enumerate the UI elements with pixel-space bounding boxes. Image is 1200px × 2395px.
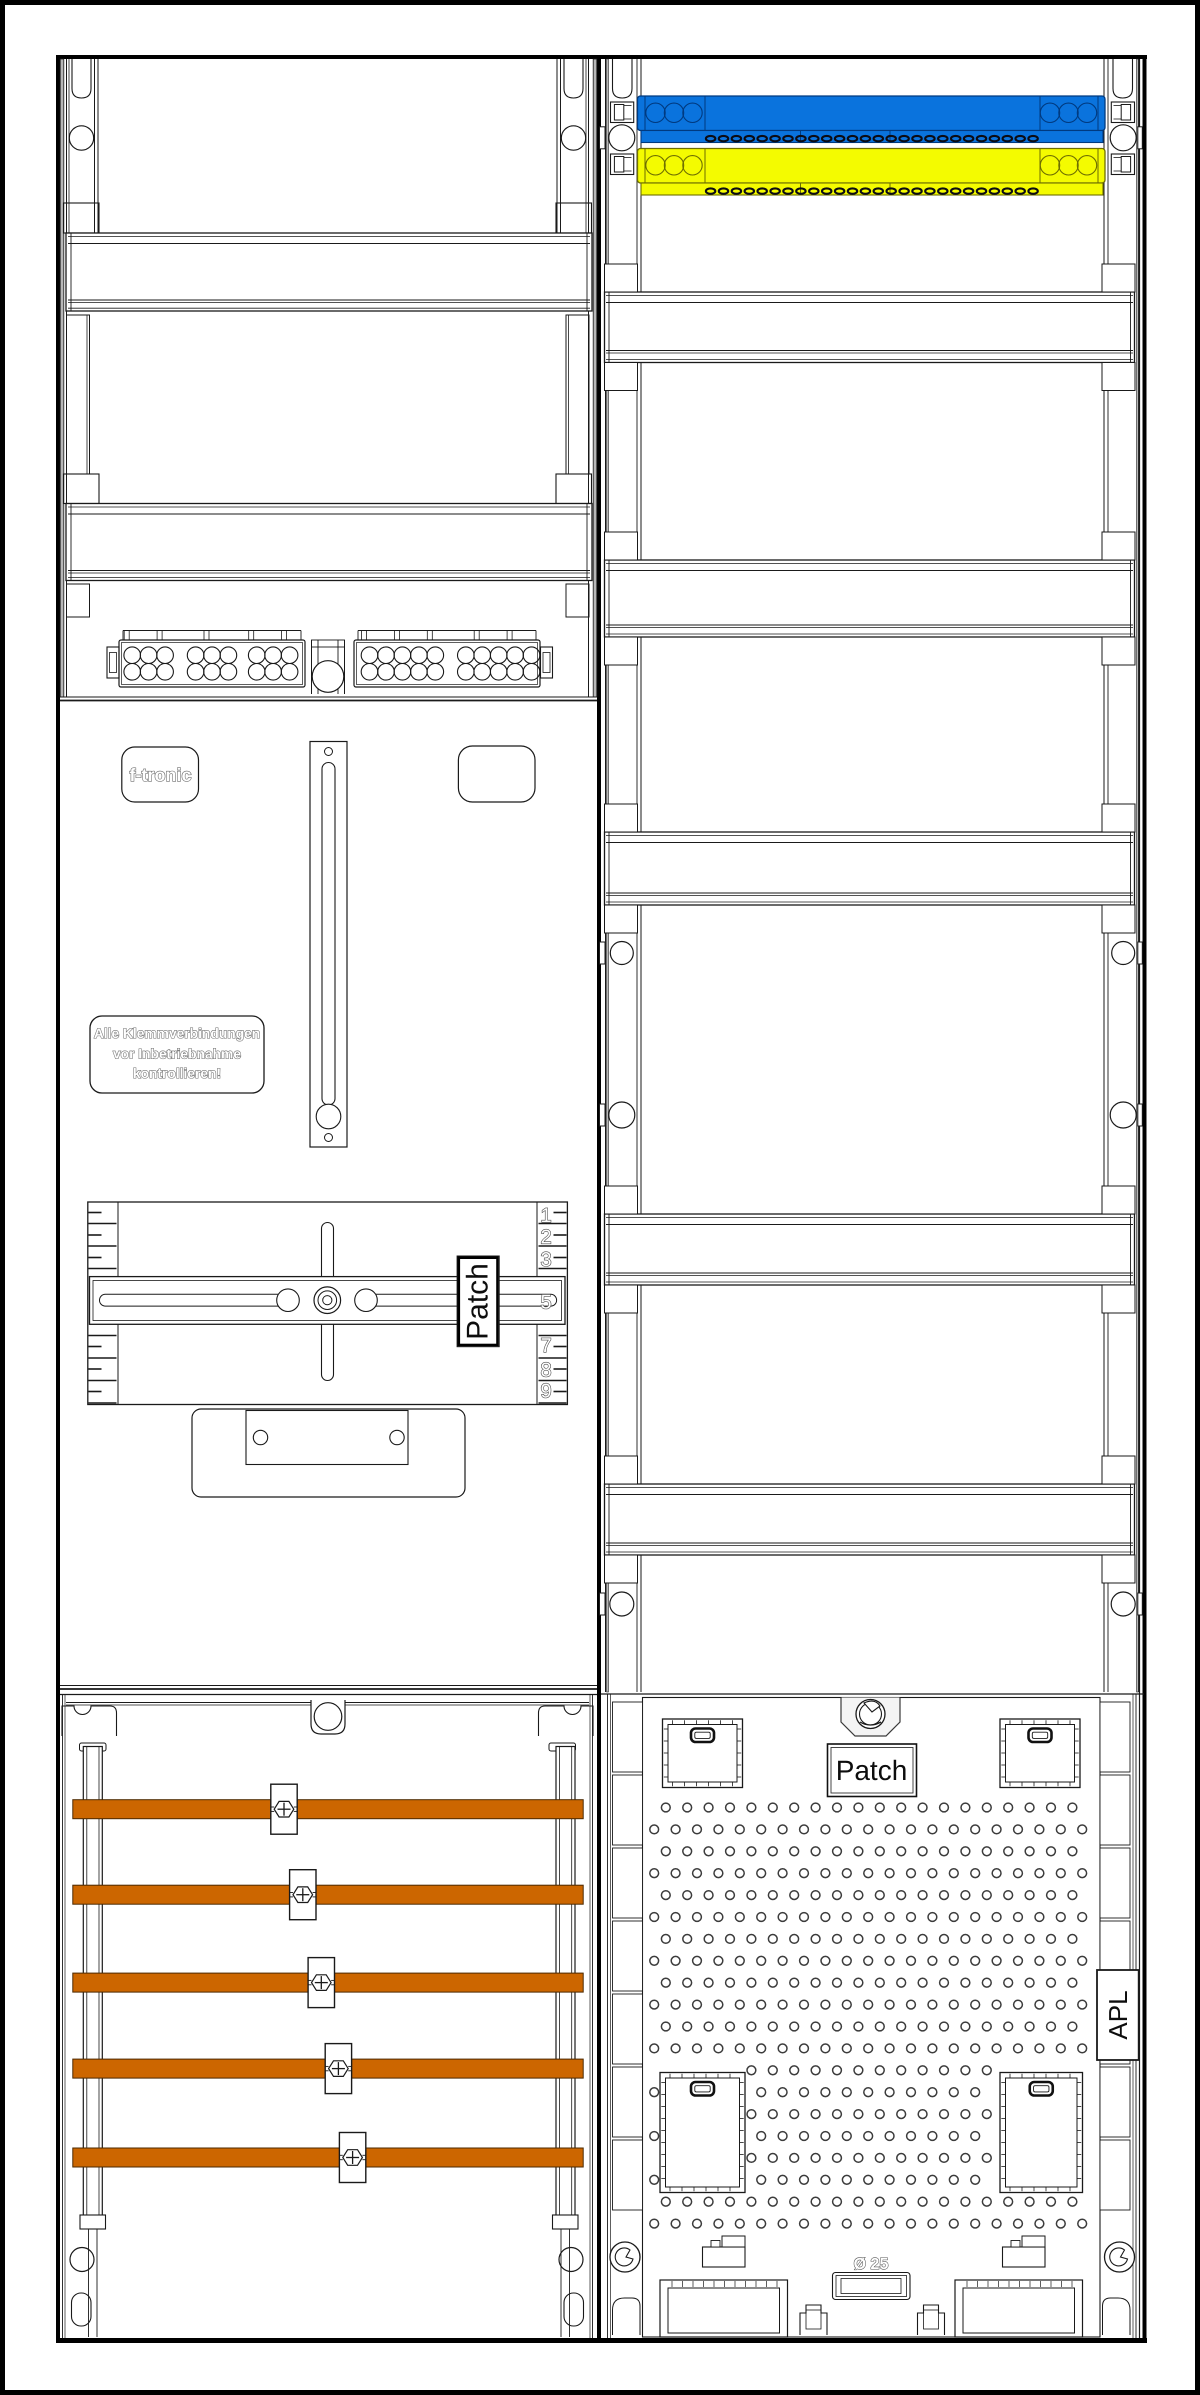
svg-text:Alle Klemmverbindungen: Alle Klemmverbindungen: [94, 1026, 260, 1041]
svg-text:f-tronic: f-tronic: [130, 765, 192, 785]
svg-text:7: 7: [540, 1335, 551, 1357]
svg-text:Ø 25: Ø 25: [854, 2256, 889, 2273]
svg-text:vor Inbetriebnahme: vor Inbetriebnahme: [113, 1047, 241, 1062]
svg-text:Patch: Patch: [836, 1755, 908, 1786]
svg-text:9: 9: [540, 1381, 551, 1403]
svg-text:1: 1: [540, 1205, 551, 1227]
svg-text:2: 2: [540, 1227, 551, 1249]
svg-text:3: 3: [540, 1249, 551, 1271]
svg-text:kontrollieren!: kontrollieren!: [133, 1066, 221, 1081]
svg-text:8: 8: [540, 1360, 551, 1382]
svg-text:5: 5: [540, 1292, 551, 1314]
svg-text:Patch: Patch: [462, 1263, 495, 1340]
svg-text:APL: APL: [1103, 1990, 1133, 2039]
